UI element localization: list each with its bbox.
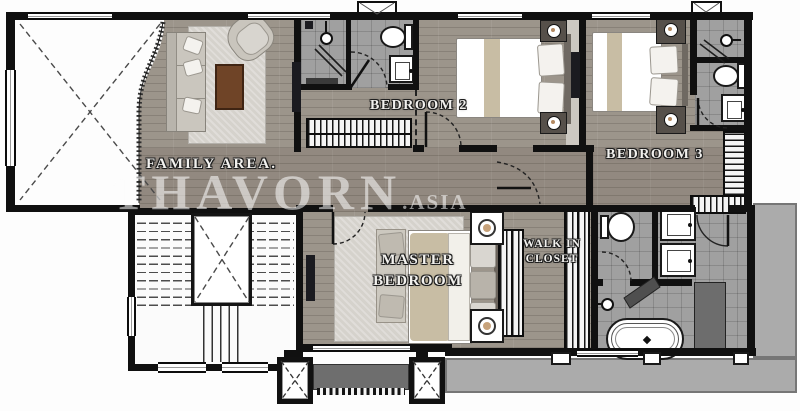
- wall-walkin-bath: [591, 205, 598, 350]
- window: [158, 362, 206, 373]
- window-sill: [643, 352, 661, 365]
- shower-head-icon: [601, 298, 614, 311]
- bath3-sink: [721, 94, 746, 122]
- planter: [313, 364, 409, 390]
- wall-bath3-mid: [692, 57, 746, 63]
- wall-stair-left: [128, 205, 135, 371]
- wall-bath3-left: [690, 12, 697, 95]
- bed3-headboard: [682, 44, 688, 106]
- bed3-pillow: [649, 77, 679, 107]
- label-bedroom2: BEDROOM 2: [370, 98, 468, 114]
- shower-mixer: [305, 21, 313, 29]
- lamp-icon: [664, 113, 678, 127]
- bed3-runner: [607, 33, 622, 111]
- window: [313, 344, 410, 352]
- rack-divider: [577, 208, 579, 348]
- wall-bed3-bottom: [729, 205, 750, 212]
- window-sill: [551, 352, 571, 365]
- wall-bed2-bottom: [413, 145, 424, 152]
- shower-head-icon: [320, 32, 333, 45]
- master-nightstand: [470, 309, 504, 343]
- table-lamp-icon: [478, 219, 496, 237]
- wall-bath2-right: [413, 12, 419, 90]
- bed2-closet-rack: [306, 118, 412, 148]
- bath2-sink: [389, 55, 414, 83]
- window: [5, 70, 16, 166]
- planter-hatch: [317, 388, 405, 395]
- sofa-back-cushion: [167, 33, 177, 131]
- wall-bed2-bottom: [459, 145, 497, 152]
- window: [28, 12, 112, 20]
- bed2-headboard: [564, 34, 571, 124]
- wall-right-upper: [744, 12, 752, 212]
- column: [277, 357, 313, 404]
- wall-bed2-bed3: [579, 12, 586, 148]
- bed2-runner: [484, 39, 500, 117]
- bath2-toilet-bowl: [380, 26, 406, 48]
- label-walk-in-closet: WALK IN CLOSET: [512, 237, 592, 267]
- bed2-nightstand: [540, 20, 567, 42]
- wall-bath3-bottom: [690, 125, 750, 131]
- shower-arm: [731, 39, 741, 41]
- vanity-sink: [660, 243, 696, 277]
- lamp-icon: [664, 23, 678, 37]
- column: [409, 357, 445, 404]
- wall-right-lower: [747, 205, 755, 356]
- wall-bath2-bottom: [296, 84, 352, 90]
- master-tv: [306, 255, 315, 301]
- wall-bed3-bottom: [586, 205, 695, 212]
- window: [248, 12, 330, 20]
- bed3-pillow: [649, 45, 678, 74]
- coffee-table: [215, 64, 244, 110]
- window: [592, 12, 650, 20]
- terrace-right: [753, 203, 797, 358]
- vanity-sink: [660, 207, 696, 241]
- bed3-nightstand: [656, 16, 686, 44]
- watermark-suffix: .ASIA: [402, 190, 467, 214]
- label-bedroom3: BEDROOM 3: [606, 147, 704, 163]
- master-nightstand: [470, 211, 504, 245]
- master-toilet-bowl: [607, 212, 635, 242]
- family-tv: [292, 62, 301, 112]
- rack-divider: [308, 133, 410, 135]
- lamp-icon: [547, 24, 561, 38]
- floor-plan: THAVORN.ASIA FAMILY AREA. BEDROOM 2 BEDR…: [0, 0, 800, 411]
- bed2-pillow: [537, 81, 565, 114]
- label-walkin-line1: WALK IN: [512, 237, 592, 252]
- table-lamp-icon: [478, 317, 496, 335]
- window: [577, 349, 638, 357]
- label-walkin-line2: CLOSET: [512, 252, 592, 267]
- label-master-bedroom: MASTER BEDROOM: [366, 250, 470, 292]
- shower-arm: [325, 21, 327, 32]
- stair-balustrade: [203, 306, 241, 362]
- window-sill: [733, 352, 749, 365]
- master-ottoman: [378, 294, 405, 319]
- wall-toilet-room-bottom: [630, 279, 692, 286]
- label-master-line2: BEDROOM: [366, 271, 470, 292]
- label-master-line1: MASTER: [366, 250, 470, 271]
- window: [458, 12, 522, 20]
- wall-bath2-mid: [346, 16, 351, 87]
- wall-toilet-room-bottom: [598, 279, 603, 286]
- lamp-icon: [547, 116, 561, 130]
- stair-void: [191, 213, 252, 306]
- wall-toilet-room-right: [652, 205, 658, 284]
- walkin-rack-right: [564, 206, 590, 350]
- wall-hall-bed3: [586, 145, 593, 211]
- master-pillow: [470, 271, 496, 299]
- bed3-tv: [571, 52, 580, 98]
- bed3-nightstand: [656, 106, 686, 134]
- label-family-area: FAMILY AREA.: [146, 156, 277, 173]
- bed2-pillow: [537, 43, 565, 77]
- window: [222, 362, 268, 373]
- bed2-nightstand: [540, 112, 567, 134]
- bath3-toilet-bowl: [713, 65, 739, 87]
- window: [127, 297, 136, 336]
- bath-storage-block: [694, 282, 726, 352]
